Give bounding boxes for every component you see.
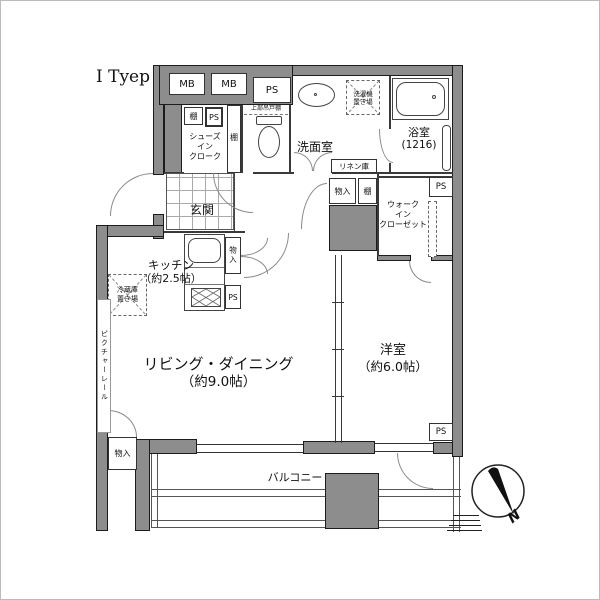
pipe-space-top-label: PS: [266, 85, 278, 96]
wic-line3: クローゼット: [379, 220, 427, 230]
bedroom-pipe-space: PS: [429, 423, 453, 441]
balcony-left-1: [151, 454, 152, 528]
partition-tick-1: [332, 302, 344, 303]
hall-storage: 物入: [329, 178, 356, 204]
balcony-line-3: [151, 520, 461, 521]
wall-bath-left-bottom: [389, 163, 391, 173]
meter-box-2-label: MB: [221, 79, 237, 90]
toilet-bowl: [258, 126, 280, 158]
living-room-label: リビング・ダイニング （約9.0帖）: [116, 349, 321, 397]
washbasin-drain: [314, 93, 317, 96]
stove-hatch-icon: [192, 289, 220, 306]
compass: N: [469, 462, 531, 528]
wall-bottom-mid: [303, 441, 375, 454]
living-balcony-window: [197, 444, 303, 453]
living-name: リビング・ダイニング: [143, 355, 293, 374]
living-storage: 物入: [108, 437, 137, 470]
bathtub-inner: [396, 82, 445, 116]
sic-shelf-box: 棚: [184, 107, 203, 125]
wall-toilet-left: [241, 105, 243, 173]
kitchen-pipe-space: PS: [225, 285, 241, 309]
fridge-label-2: 置き場: [117, 295, 138, 304]
bathtub-drain: [432, 95, 436, 99]
bathroom-size: (1216): [402, 139, 437, 152]
balcony-line-2: [151, 496, 461, 497]
wall-break-hatch-4: [447, 530, 482, 531]
wall-washroom-left: [289, 105, 291, 173]
living-storage-door-arc: [108, 410, 137, 437]
shelf-strip-label: 棚: [230, 132, 238, 143]
picture-rail-label: ピクチャーレール: [97, 299, 111, 433]
bedroom-ps-label: PS: [436, 427, 447, 437]
meter-box-1: MB: [169, 73, 205, 95]
linen-closet: リネン庫: [331, 159, 377, 173]
balcony-label: バルコニー: [241, 471, 349, 485]
meter-box-2: MB: [211, 73, 247, 95]
partition-tick-3: [332, 396, 344, 397]
living-size: （約9.0帖）: [181, 374, 256, 391]
hallway-door-arc: [301, 183, 327, 229]
washroom-label: 洗面室: [281, 140, 349, 155]
kitchen-ps-label: PS: [228, 293, 237, 302]
shoes-in-closet-label: シューズ イン クローク: [180, 127, 230, 167]
bedroom-size: （約6.0帖）: [358, 359, 428, 375]
sic-ps-label: PS: [209, 113, 219, 122]
kitchen-size: （約2.5帖）: [140, 272, 202, 286]
wall-hall-kitchen: [164, 231, 245, 233]
toilet-tank: [256, 116, 282, 125]
wic-ps-label: PS: [436, 182, 447, 192]
kitchen-storage-label: 物入: [228, 246, 239, 265]
sic-pipe-space: PS: [205, 107, 223, 127]
bedroom-balcony-door-arc: [397, 453, 433, 489]
balcony-left-2: [157, 454, 158, 528]
hall-shelf-label: 棚: [364, 186, 372, 197]
picture-rail-text: ピクチャーレール: [100, 330, 109, 402]
wic-line1: ウォーク: [387, 200, 419, 210]
wic-line2: イン: [395, 210, 411, 220]
linen-label: リネン庫: [339, 161, 369, 172]
bathroom-label: 浴室 (1216): [390, 122, 448, 156]
kitchen-storage: 物入: [225, 237, 241, 274]
sic-line1: シューズ: [189, 132, 221, 142]
hall-storage-label: 物入: [335, 186, 351, 197]
kitchen-name: キッチン: [148, 258, 194, 272]
bedroom-name: 洋室: [380, 343, 406, 359]
kitchen-label: キッチン （約2.5帖）: [125, 253, 217, 291]
balcony-line-4: [151, 527, 461, 528]
wall-bottom-right-stub: [433, 442, 453, 454]
meter-box-1-label: MB: [179, 79, 195, 90]
sic-line3: クローク: [189, 152, 221, 162]
washer-label-2: 置き場: [353, 98, 373, 106]
wall-right: [452, 65, 463, 457]
living-storage-label: 物入: [115, 448, 131, 459]
bathroom-name: 浴室: [408, 126, 430, 140]
sic-line2: イン: [197, 142, 213, 152]
bedroom-balcony-window: [375, 443, 433, 452]
balcony-line-1: [151, 489, 461, 490]
washer-label-1: 洗濯機: [353, 90, 373, 98]
compass-icon: N: [469, 462, 531, 528]
walk-in-closet-label: ウォーク イン クローゼット: [375, 194, 431, 236]
entrance-label: 玄関: [178, 203, 226, 218]
wic-door-arc: [409, 261, 431, 283]
pipe-space-top: PS: [253, 77, 291, 103]
floor-plan: I Tyep MB MB PS 棚: [0, 0, 600, 600]
sic-shelf-label: 棚: [190, 111, 198, 122]
bedroom-label: 洋室 （約6.0帖）: [337, 335, 449, 383]
wall-bottom-left-v: [135, 439, 150, 531]
toilet-upper-cabinet: 上部吊戸棚: [244, 103, 288, 115]
wall-bedroom-top-left: [377, 255, 411, 261]
washer-label: 洗濯機 置き場: [346, 85, 380, 111]
pillar-mid: [329, 205, 377, 251]
entrance-door-arc: [110, 173, 153, 216]
wic-pipe-space: PS: [429, 177, 453, 197]
wall-hall-2: [253, 172, 294, 174]
